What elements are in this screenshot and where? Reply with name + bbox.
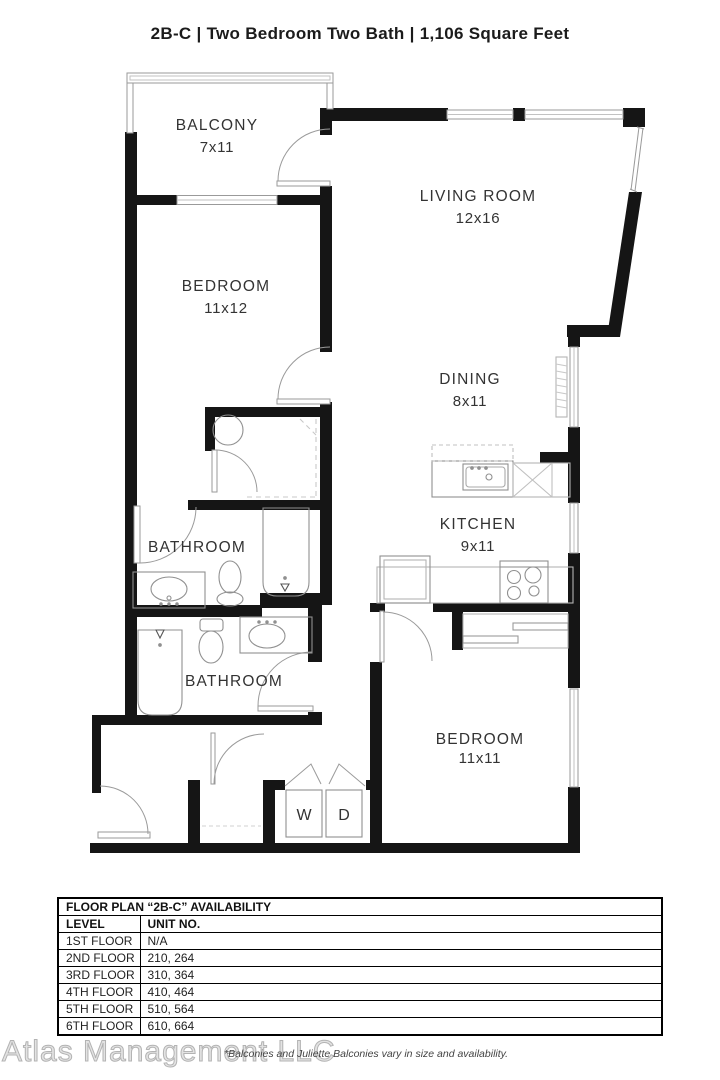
label-kitchen: KITCHEN — [440, 516, 516, 533]
unit-cell: 510, 564 — [140, 1001, 662, 1018]
level-cell: 3RD FLOOR — [58, 967, 140, 984]
unit-cell: 610, 664 — [140, 1018, 662, 1036]
table-row: 1ST FLOOR N/A — [58, 933, 662, 950]
table-title-row: FLOOR PLAN “2B-C” AVAILABILITY — [58, 898, 662, 916]
bottom-counter — [377, 567, 573, 603]
table-row: 4TH FLOOR 410, 464 — [58, 984, 662, 1001]
wd-bifold-doors — [285, 764, 365, 786]
dining-buffet — [556, 357, 567, 417]
walkin-closet-door — [212, 450, 257, 492]
label-dining: DINING — [439, 371, 500, 388]
unit-cell: 410, 464 — [140, 984, 662, 1001]
col-header-level: LEVEL — [58, 916, 140, 933]
availability-table: FLOOR PLAN “2B-C” AVAILABILITY LEVEL UNI… — [57, 897, 663, 1036]
dims-bedroom1: 11x12 — [204, 300, 248, 317]
toilet-bowl — [219, 561, 241, 593]
entry-door — [98, 786, 150, 838]
bedroom2-door — [380, 611, 432, 662]
level-cell: 6TH FLOOR — [58, 1018, 140, 1036]
dims-balcony: 7x11 — [200, 139, 235, 156]
dims-bedroom2: 11x11 — [459, 750, 502, 767]
label-bedroom2: BEDROOM — [436, 731, 525, 748]
label-living: LIVING ROOM — [420, 188, 537, 205]
island-overhang — [432, 445, 513, 461]
bathtub — [138, 630, 182, 715]
toilet-tank — [200, 619, 223, 631]
unit-cell: N/A — [140, 933, 662, 950]
disclaimer-note: *Balconies and Juliette Balconies vary i… — [224, 1048, 508, 1060]
diagonal-window — [630, 127, 644, 192]
walkin-closet — [213, 415, 316, 497]
bedroom1-door — [277, 347, 330, 404]
bathroom2-fixtures — [138, 617, 312, 715]
toilet-tank — [217, 592, 243, 606]
bathtub — [263, 508, 309, 596]
label-bathroom1: BATHROOM — [148, 539, 246, 556]
table-row: 5TH FLOOR 510, 564 — [58, 1001, 662, 1018]
label-balcony: BALCONY — [176, 117, 258, 134]
stove — [500, 561, 548, 603]
label-bedroom1: BEDROOM — [182, 278, 271, 295]
level-cell: 1ST FLOOR — [58, 933, 140, 950]
table-header-row: LEVEL UNIT NO. — [58, 916, 662, 933]
right-counter — [513, 463, 570, 497]
table-row: 2ND FLOOR 210, 264 — [58, 950, 662, 967]
unit-cell: 310, 364 — [140, 967, 662, 984]
dims-living: 12x16 — [456, 210, 501, 227]
toilet-bowl — [199, 631, 223, 663]
fridge — [380, 556, 430, 603]
dims-dining: 8x11 — [453, 393, 488, 410]
balcony-door — [277, 129, 330, 186]
table-title: FLOOR PLAN “2B-C” AVAILABILITY — [58, 898, 662, 916]
level-cell: 4TH FLOOR — [58, 984, 140, 1001]
dims-kitchen: 9x11 — [461, 538, 496, 555]
fixtures — [133, 357, 573, 837]
level-cell: 5TH FLOOR — [58, 1001, 140, 1018]
level-cell: 2ND FLOOR — [58, 950, 140, 967]
dishwasher — [513, 463, 552, 497]
hall-closet-door — [211, 733, 264, 784]
unit-cell: 210, 264 — [140, 950, 662, 967]
col-header-unit: UNIT NO. — [140, 916, 662, 933]
table-row: 6TH FLOOR 610, 664 — [58, 1018, 662, 1036]
table-row: 3RD FLOOR 310, 364 — [58, 967, 662, 984]
bedroom2-closet — [463, 614, 568, 648]
label-washer: W — [296, 807, 312, 824]
label-bathroom2: BATHROOM — [185, 673, 283, 690]
label-dryer: D — [338, 807, 350, 824]
floor-plan: BALCONY 7x11 LIVING ROOM 12x16 BEDROOM 1… — [0, 0, 720, 890]
walls — [90, 108, 645, 853]
